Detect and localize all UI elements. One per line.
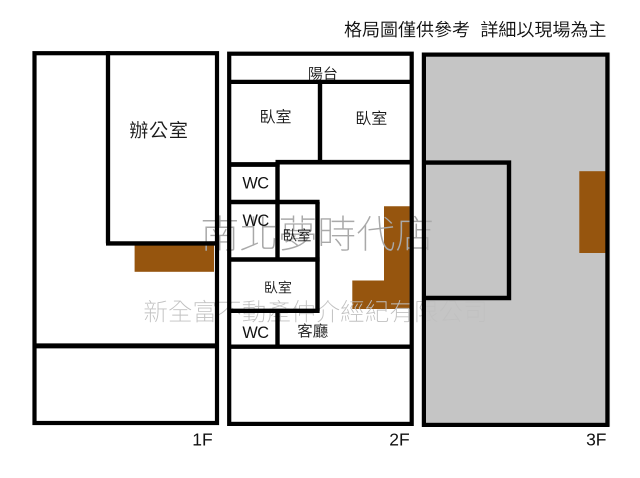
svg-text:3F: 3F: [586, 430, 606, 450]
svg-text:WC: WC: [242, 174, 269, 192]
svg-text:WC: WC: [242, 324, 269, 342]
svg-text:WC: WC: [243, 212, 270, 230]
svg-text:1F: 1F: [192, 430, 212, 450]
svg-text:2F: 2F: [389, 430, 409, 450]
